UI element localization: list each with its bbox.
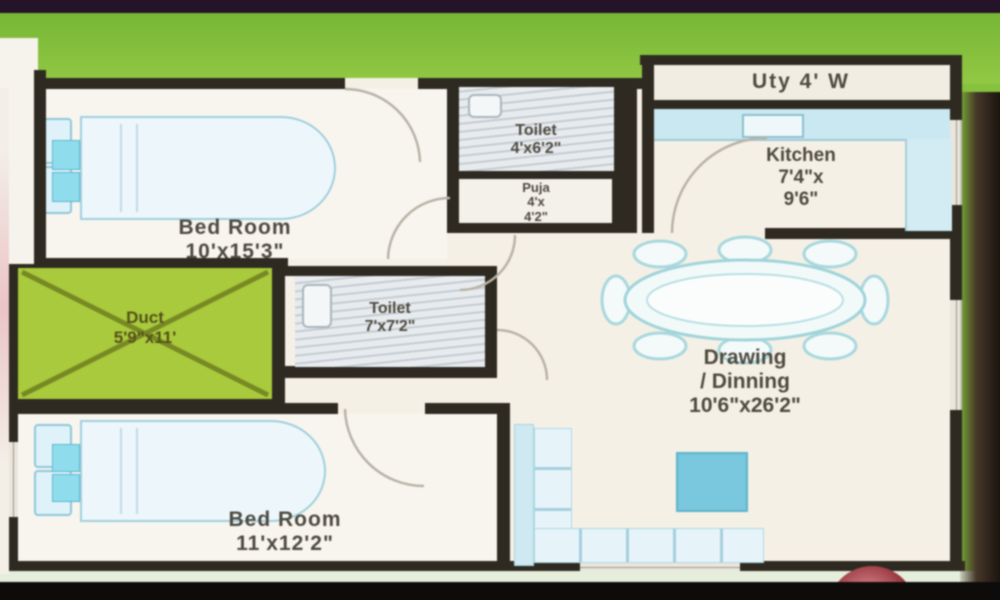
left-edge-strip — [0, 88, 9, 574]
bedroom1-label: Bed Room 10'x15'3" — [100, 216, 370, 264]
dining-table — [625, 260, 865, 340]
duct-label: Duct 5'9"x11' — [30, 308, 260, 347]
floor-plan-image: Bed Room 10'x15'3" Toilet 4'x6'2" Puja 4… — [0, 0, 1000, 600]
drawing-dining-label: Drawing / Dinning 10'6"x26'2" — [610, 346, 880, 418]
left-edge-structure-wall — [34, 70, 46, 264]
top-dark-bar — [0, 0, 1000, 13]
bottom-dark-bar — [0, 582, 1000, 600]
toilet1-label: Toilet 4'x6'2" — [461, 122, 611, 159]
right-edge-shadow — [960, 92, 1000, 584]
plan-scene: Bed Room 10'x15'3" Toilet 4'x6'2" Puja 4… — [0, 0, 1000, 600]
kitchen-label: Kitchen 7'4"x 9'6" — [652, 145, 950, 211]
bedroom2-label: Bed Room 11'x12'2" — [140, 508, 430, 556]
toilet2-label: Toilet 7'x7'2" — [300, 300, 480, 337]
puja-label: Puja 4'x 4'2" — [461, 181, 611, 224]
utility-label: Uty 4' W — [652, 70, 950, 94]
